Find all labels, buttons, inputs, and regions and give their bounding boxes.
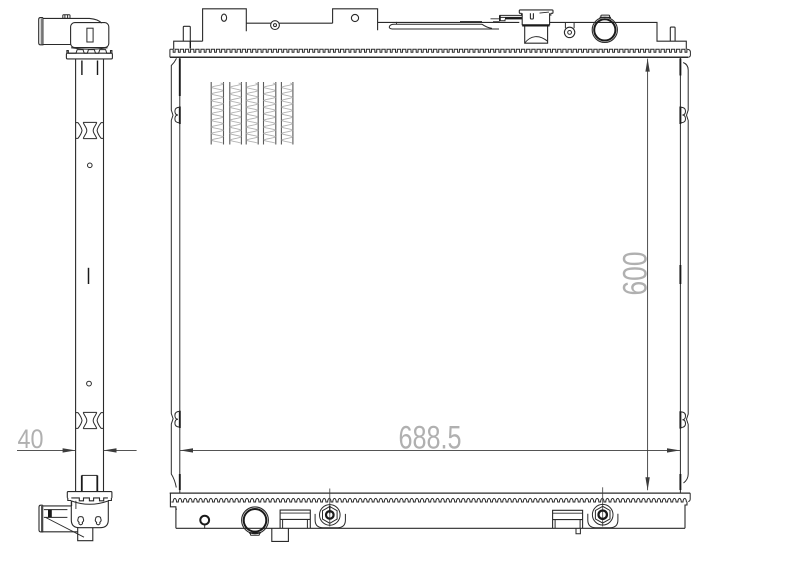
svg-text:600: 600 [617,252,655,296]
svg-text:688.5: 688.5 [399,420,462,456]
svg-text:40: 40 [18,424,44,454]
